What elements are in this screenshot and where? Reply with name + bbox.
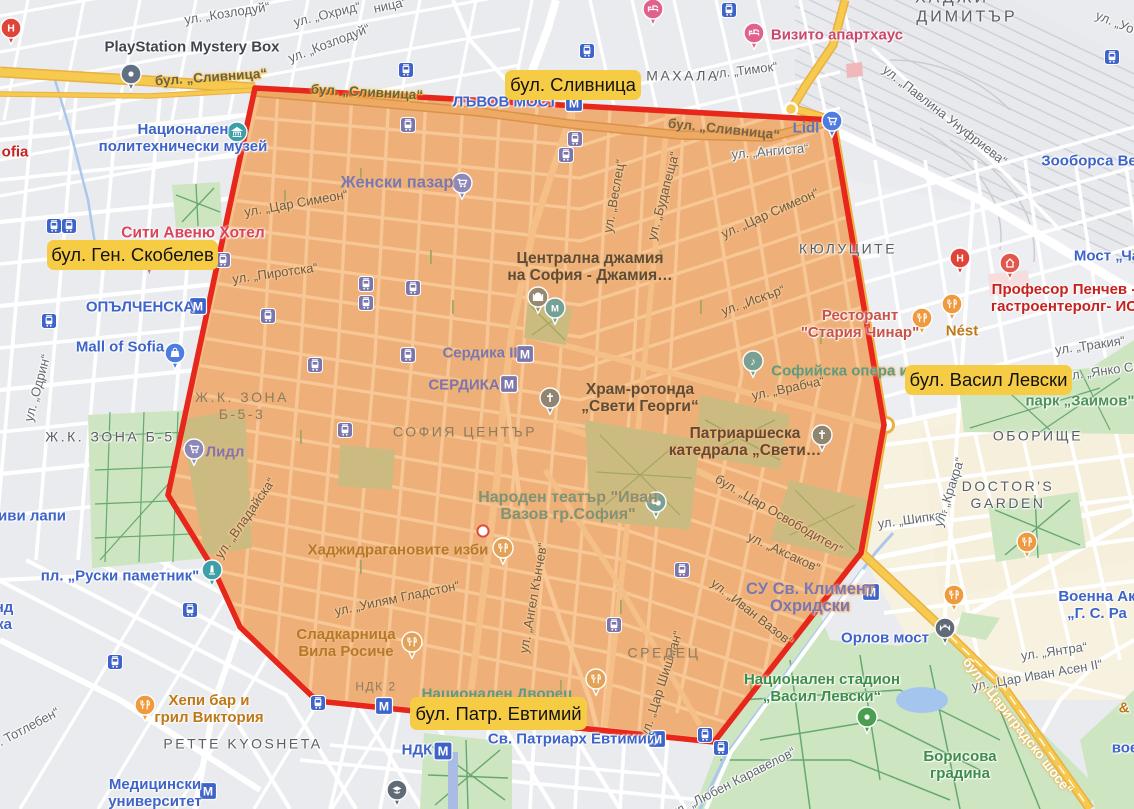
svg-text:M: M bbox=[193, 299, 203, 313]
svg-text:M: M bbox=[203, 784, 213, 798]
svg-text:M: M bbox=[379, 699, 389, 713]
svg-text:M: M bbox=[438, 744, 449, 759]
svg-text:H: H bbox=[956, 253, 964, 265]
svg-text:M: M bbox=[551, 303, 559, 314]
svg-text:M: M bbox=[504, 377, 514, 391]
svg-text:H: H bbox=[7, 23, 15, 35]
svg-text:M: M bbox=[520, 347, 530, 361]
svg-text:♪: ♪ bbox=[750, 356, 756, 368]
